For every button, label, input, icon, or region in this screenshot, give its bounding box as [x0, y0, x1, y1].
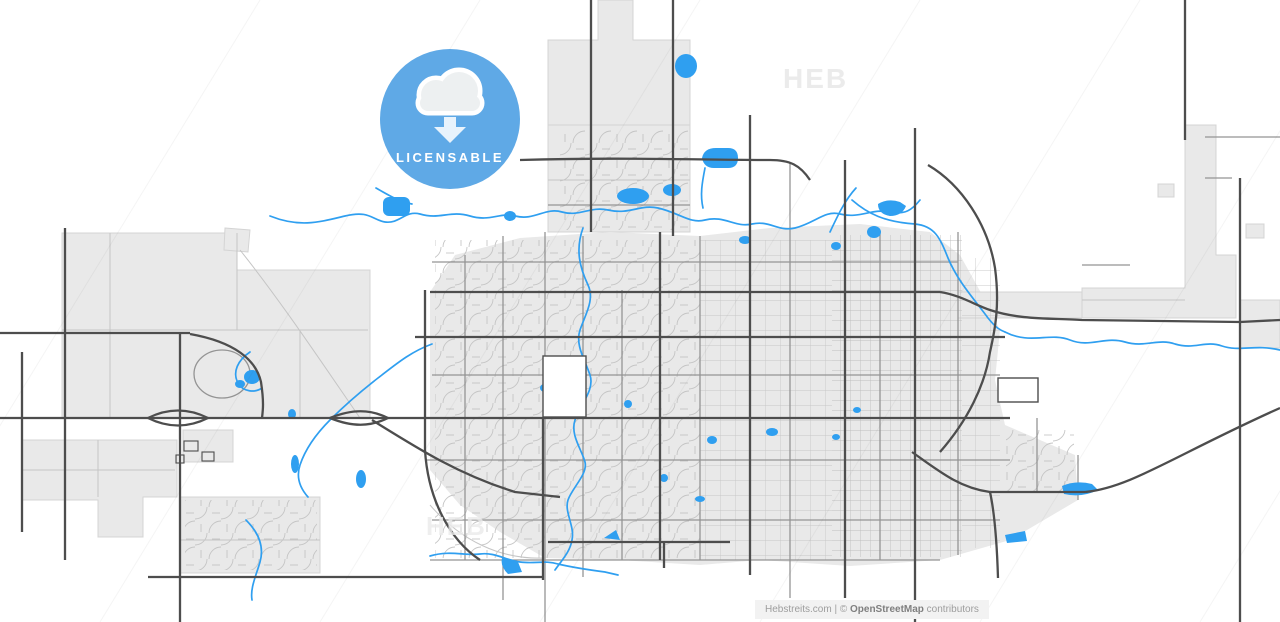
- download-arrow-icon: [434, 117, 466, 143]
- attribution-bar: Hebstreits.com | © OpenStreetMap contrib…: [755, 600, 989, 619]
- city-map: [0, 0, 1280, 622]
- attribution-osm-link[interactable]: OpenStreetMap: [850, 604, 924, 615]
- attribution-divider: |: [832, 604, 840, 615]
- attribution-suffix: contributors: [924, 604, 979, 615]
- cloud-download-icon: [400, 59, 500, 147]
- attribution-site-link[interactable]: Hebstreits.com: [765, 604, 832, 615]
- attribution-copyright: ©: [840, 604, 850, 615]
- map-preview-stage: HEB HEB LICENSABLE Hebstreits.com | © Op…: [0, 0, 1280, 622]
- licensable-badge[interactable]: LICENSABLE: [380, 49, 520, 189]
- licensable-label: LICENSABLE: [396, 150, 504, 165]
